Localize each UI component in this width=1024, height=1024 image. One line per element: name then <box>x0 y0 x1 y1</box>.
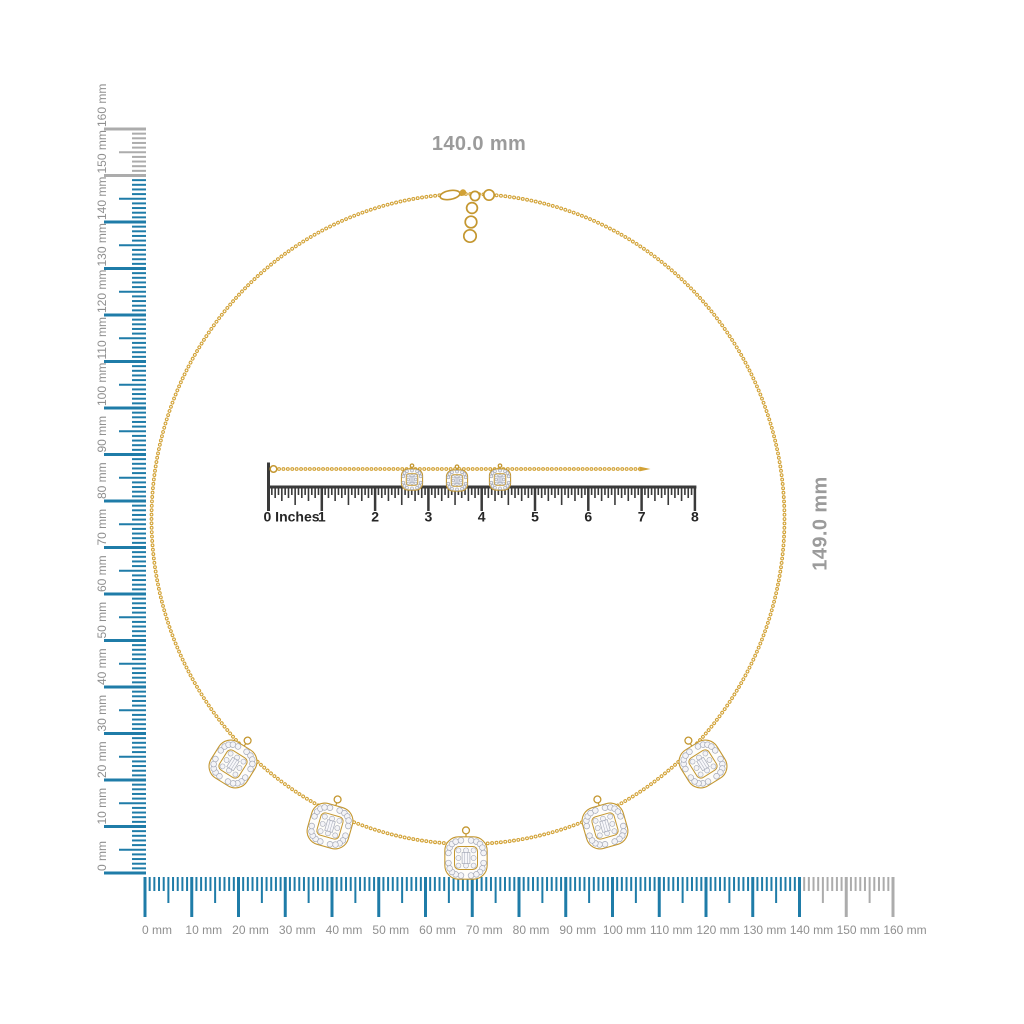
ruler-left-label: 40 mm <box>95 648 109 685</box>
chain-end-tip <box>640 467 651 472</box>
height-dimension-label: 149.0 mm <box>810 454 833 594</box>
necklace-chain-circle <box>152 194 785 844</box>
ruler-left-label: 50 mm <box>95 602 109 639</box>
ruler-inches: 0 Inches12345678 <box>264 463 700 525</box>
ruler-bottom-label: 70 mm <box>466 923 503 937</box>
ruler-left-label: 90 mm <box>95 416 109 453</box>
ruler-left-label: 30 mm <box>95 695 109 732</box>
ruler-bottom-label: 130 mm <box>743 923 786 937</box>
product-measurement-image: 0 mm10 mm20 mm30 mm40 mm50 mm60 mm70 mm8… <box>0 0 1024 1024</box>
ruler-left-label: 0 mm <box>95 841 109 871</box>
ruler-bottom-label: 110 mm <box>650 923 692 937</box>
ruler-left-label: 100 mm <box>95 363 109 406</box>
ruler-left-label: 70 mm <box>95 509 109 546</box>
inch-ruler-label: 4 <box>478 509 486 525</box>
ruler-bottom-label: 90 mm <box>559 923 596 937</box>
ruler-bottom-label: 80 mm <box>513 923 550 937</box>
ruler-bottom-label: 140 mm <box>790 923 833 937</box>
ruler-left-label: 130 mm <box>95 223 109 266</box>
ruler-bottom-label: 10 mm <box>185 923 222 937</box>
ruler-bottom-label: 60 mm <box>419 923 456 937</box>
ruler-bottom-label: 30 mm <box>279 923 316 937</box>
ruler-bottom-label: 0 mm <box>142 923 172 937</box>
inch-ruler-label: 6 <box>584 509 592 525</box>
ruler-left-label: 20 mm <box>95 741 109 778</box>
ruler-left-label: 110 mm <box>95 317 109 359</box>
necklace-charm-1 <box>204 726 268 793</box>
necklace-charm-5 <box>669 726 733 793</box>
necklace-charm-2 <box>304 790 359 852</box>
necklace-charm-4 <box>576 790 631 852</box>
ruler-left-label: 80 mm <box>95 462 109 499</box>
ruler-bottom-label: 120 mm <box>696 923 739 937</box>
ruler-bottom-label: 150 mm <box>837 923 880 937</box>
width-dimension-label: 140.0 mm <box>409 133 549 156</box>
ruler-bottom-label: 20 mm <box>232 923 269 937</box>
ruler-bottom-label: 50 mm <box>372 923 409 937</box>
necklace-charm-3 <box>445 827 487 879</box>
ruler-left-label: 10 mm <box>95 788 109 825</box>
inch-ruler-zero-label: 0 Inches <box>264 509 320 525</box>
ruler-left-label: 120 mm <box>95 270 109 313</box>
ruler-bottom-label: 40 mm <box>326 923 363 937</box>
ruler-left-label: 60 mm <box>95 555 109 592</box>
inch-ruler-label: 8 <box>691 509 699 525</box>
inch-ruler-label: 1 <box>318 509 326 525</box>
ruler-bottom-label: 100 mm <box>603 923 646 937</box>
ruler-bottom-label: 160 mm <box>883 923 926 937</box>
ruler-left-label: 140 mm <box>95 177 109 220</box>
necklace-clasp <box>439 189 494 242</box>
inch-ruler-label: 5 <box>531 509 539 525</box>
ruler-left-mm: 0 mm10 mm20 mm30 mm40 mm50 mm60 mm70 mm8… <box>95 84 146 873</box>
inch-ruler-label: 7 <box>638 509 646 525</box>
ruler-left-label: 160 mm <box>95 84 109 127</box>
ruler-bottom-mm: 0 mm10 mm20 mm30 mm40 mm50 mm60 mm70 mm8… <box>142 877 927 937</box>
inch-ruler-label: 3 <box>425 509 433 525</box>
ruler-left-label: 150 mm <box>95 130 109 173</box>
inch-ruler-label: 2 <box>371 509 379 525</box>
